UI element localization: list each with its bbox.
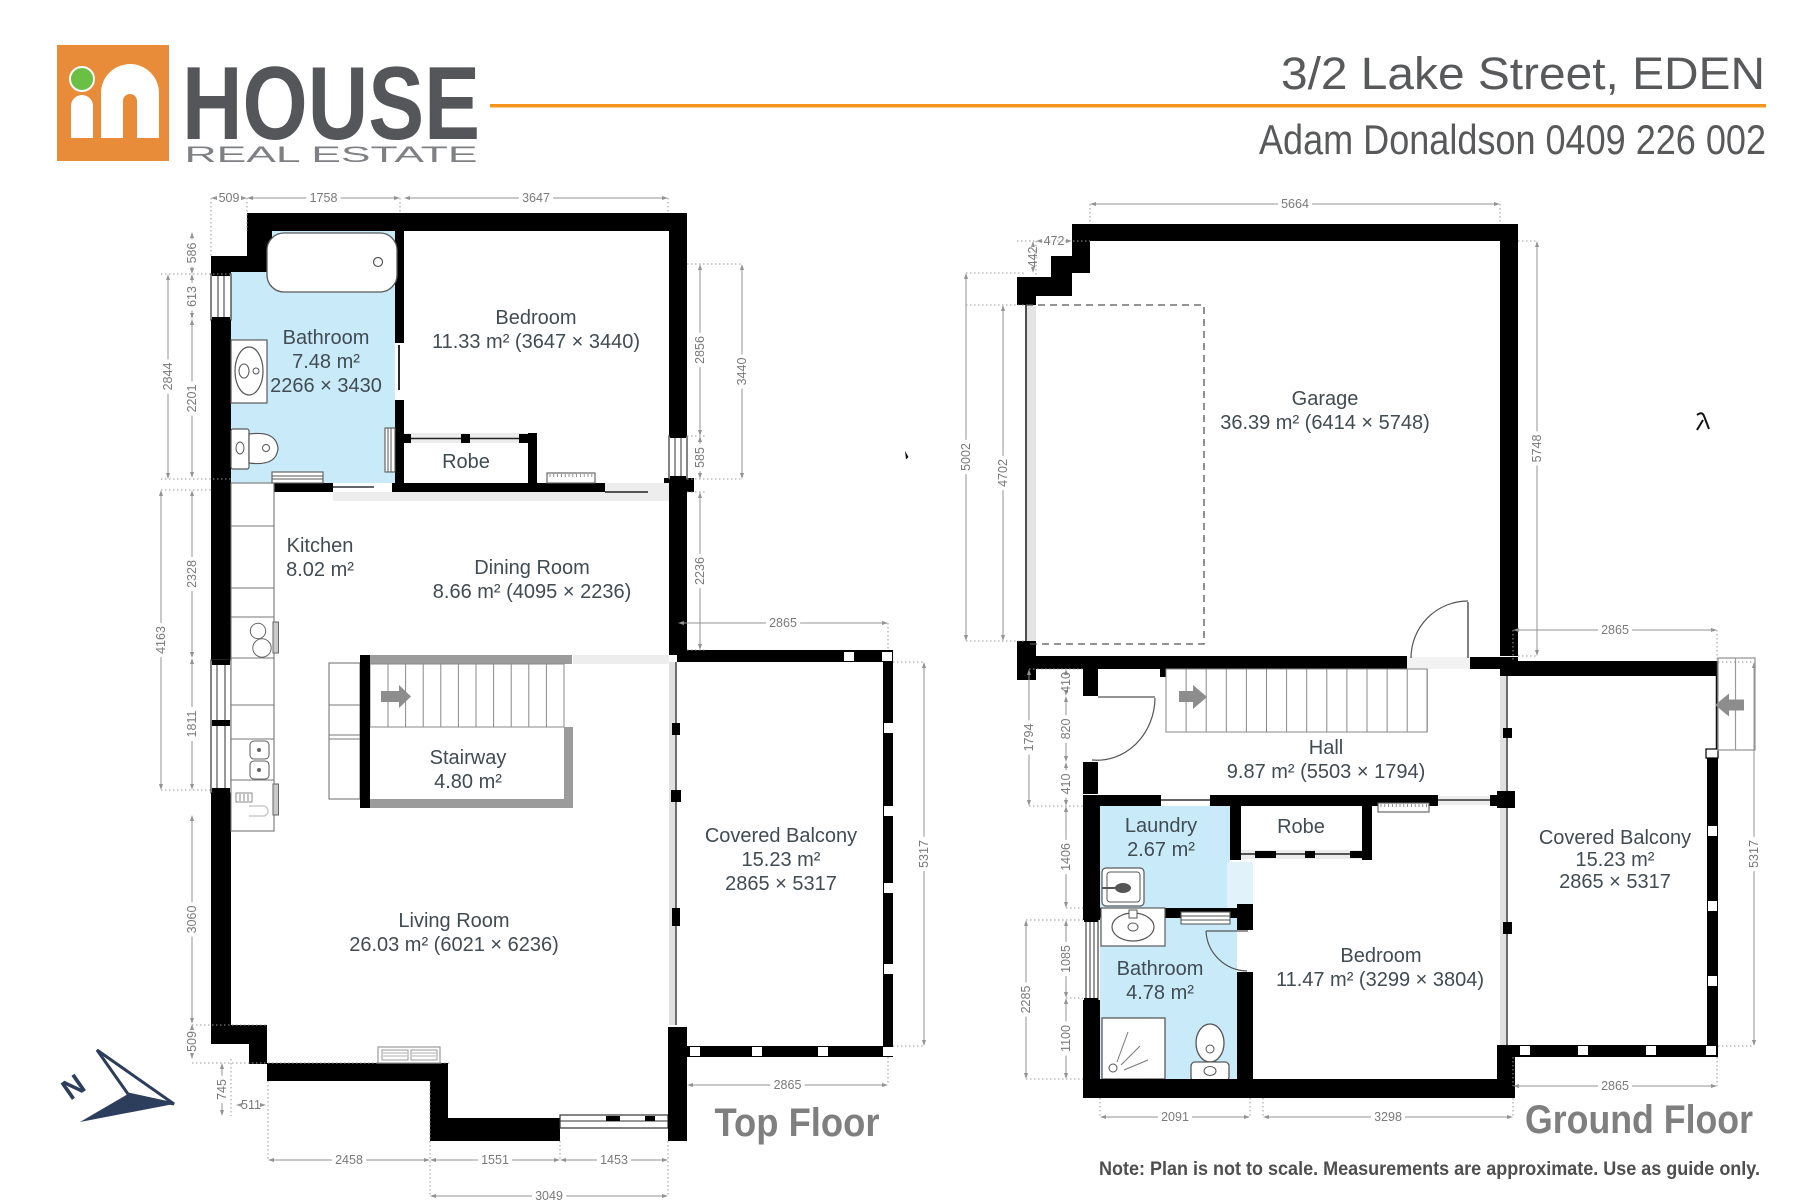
svg-text:REAL ESTATE: REAL ESTATE [185, 142, 478, 167]
svg-text:1794: 1794 [1022, 724, 1036, 752]
svg-text:442: 442 [1026, 247, 1040, 268]
svg-text:5664: 5664 [1281, 197, 1309, 211]
svg-text:4.80 m²: 4.80 m² [434, 771, 502, 793]
svg-text:4.78 m²: 4.78 m² [1126, 982, 1194, 1004]
svg-text:2091: 2091 [1161, 1110, 1189, 1124]
svg-text:4163: 4163 [154, 626, 168, 654]
svg-text:Ground Floor: Ground Floor [1525, 1098, 1753, 1142]
svg-text:3/2 Lake Street, EDEN: 3/2 Lake Street, EDEN [1281, 48, 1765, 99]
svg-text:2865 × 5317: 2865 × 5317 [1559, 871, 1671, 893]
svg-text:2236: 2236 [693, 557, 707, 585]
svg-text:3298: 3298 [1374, 1110, 1402, 1124]
svg-text:2328: 2328 [185, 560, 199, 588]
svg-text:1100: 1100 [1059, 1025, 1073, 1052]
svg-text:585: 585 [693, 447, 707, 468]
svg-text:Covered Balcony: Covered Balcony [705, 825, 857, 847]
svg-text:Note: Plan is not to scale. Me: Note: Plan is not to scale. Measurements… [1099, 1159, 1760, 1180]
svg-text:2266 × 3430: 2266 × 3430 [270, 375, 382, 397]
svg-text:11.47 m² (3299 × 3804): 11.47 m² (3299 × 3804) [1276, 969, 1484, 991]
svg-text:820: 820 [1059, 719, 1073, 740]
svg-text:511: 511 [241, 1098, 261, 1112]
svg-text:15.23 m²: 15.23 m² [742, 849, 821, 871]
svg-text:9.87 m² (5503 × 1794): 9.87 m² (5503 × 1794) [1227, 761, 1425, 783]
svg-text:Bedroom: Bedroom [495, 307, 576, 329]
svg-text:Covered Balcony: Covered Balcony [1539, 827, 1691, 849]
svg-text:2201: 2201 [185, 385, 199, 413]
svg-text:Robe: Robe [1277, 816, 1325, 838]
svg-text:410: 410 [1059, 774, 1073, 795]
svg-text:Laundry: Laundry [1125, 815, 1197, 837]
svg-text:11.33 m² (3647 × 3440): 11.33 m² (3647 × 3440) [432, 331, 640, 353]
svg-text:Dining Room: Dining Room [474, 557, 590, 579]
svg-text:3647: 3647 [522, 191, 550, 205]
svg-text:2865: 2865 [1601, 623, 1629, 637]
svg-text:Stairway: Stairway [430, 747, 507, 769]
svg-text:2865: 2865 [774, 1078, 802, 1092]
svg-text:1758: 1758 [310, 191, 338, 205]
svg-text:26.03 m² (6021 × 6236): 26.03 m² (6021 × 6236) [349, 934, 559, 956]
svg-text:2285: 2285 [1019, 986, 1033, 1014]
svg-text:Bedroom: Bedroom [1340, 945, 1421, 967]
svg-text:5748: 5748 [1530, 435, 1544, 463]
svg-text:5317: 5317 [917, 840, 931, 868]
svg-text:2865: 2865 [1601, 1079, 1629, 1093]
svg-text:Garage: Garage [1292, 388, 1359, 410]
svg-text:1085: 1085 [1059, 945, 1073, 973]
svg-text:4702: 4702 [996, 459, 1010, 487]
svg-text:410: 410 [1059, 672, 1073, 693]
svg-text:Bathroom: Bathroom [283, 327, 370, 349]
svg-text:3440: 3440 [735, 358, 749, 386]
svg-text:Kitchen: Kitchen [287, 535, 354, 557]
svg-text:2865: 2865 [769, 616, 797, 630]
svg-text:1406: 1406 [1059, 843, 1073, 871]
svg-text:15.23 m²: 15.23 m² [1576, 849, 1655, 871]
svg-text:745: 745 [215, 1079, 229, 1100]
svg-text:8.66 m² (4095 × 2236): 8.66 m² (4095 × 2236) [433, 581, 631, 603]
svg-text:586: 586 [185, 243, 199, 264]
svg-text:2856: 2856 [693, 336, 707, 364]
svg-text:Hall: Hall [1309, 737, 1343, 759]
svg-text:613: 613 [185, 286, 199, 307]
svg-text:1551: 1551 [481, 1153, 509, 1167]
svg-text:3060: 3060 [185, 906, 199, 934]
svg-text:36.39 m² (6414 × 5748): 36.39 m² (6414 × 5748) [1220, 412, 1430, 434]
svg-text:509: 509 [219, 191, 240, 205]
svg-text:2844: 2844 [161, 363, 175, 391]
svg-text:1811: 1811 [185, 711, 199, 738]
svg-text:509: 509 [185, 1031, 199, 1052]
svg-text:8.02 m²: 8.02 m² [286, 559, 354, 581]
svg-text:Bathroom: Bathroom [1117, 958, 1204, 980]
svg-text:5002: 5002 [959, 443, 973, 471]
svg-text:2.67 m²: 2.67 m² [1127, 839, 1195, 861]
svg-text:Adam Donaldson 0409 226 002: Adam Donaldson 0409 226 002 [1259, 116, 1766, 163]
svg-text:3049: 3049 [535, 1189, 563, 1200]
svg-text:2458: 2458 [335, 1153, 363, 1167]
svg-text:Living Room: Living Room [398, 910, 509, 932]
svg-text:7.48 m²: 7.48 m² [292, 351, 360, 373]
svg-text:2865 × 5317: 2865 × 5317 [725, 873, 837, 895]
svg-text:5317: 5317 [1747, 840, 1761, 868]
svg-text:Robe: Robe [442, 451, 490, 473]
svg-text:Top Floor: Top Floor [715, 1101, 880, 1145]
svg-text:1453: 1453 [600, 1153, 628, 1167]
